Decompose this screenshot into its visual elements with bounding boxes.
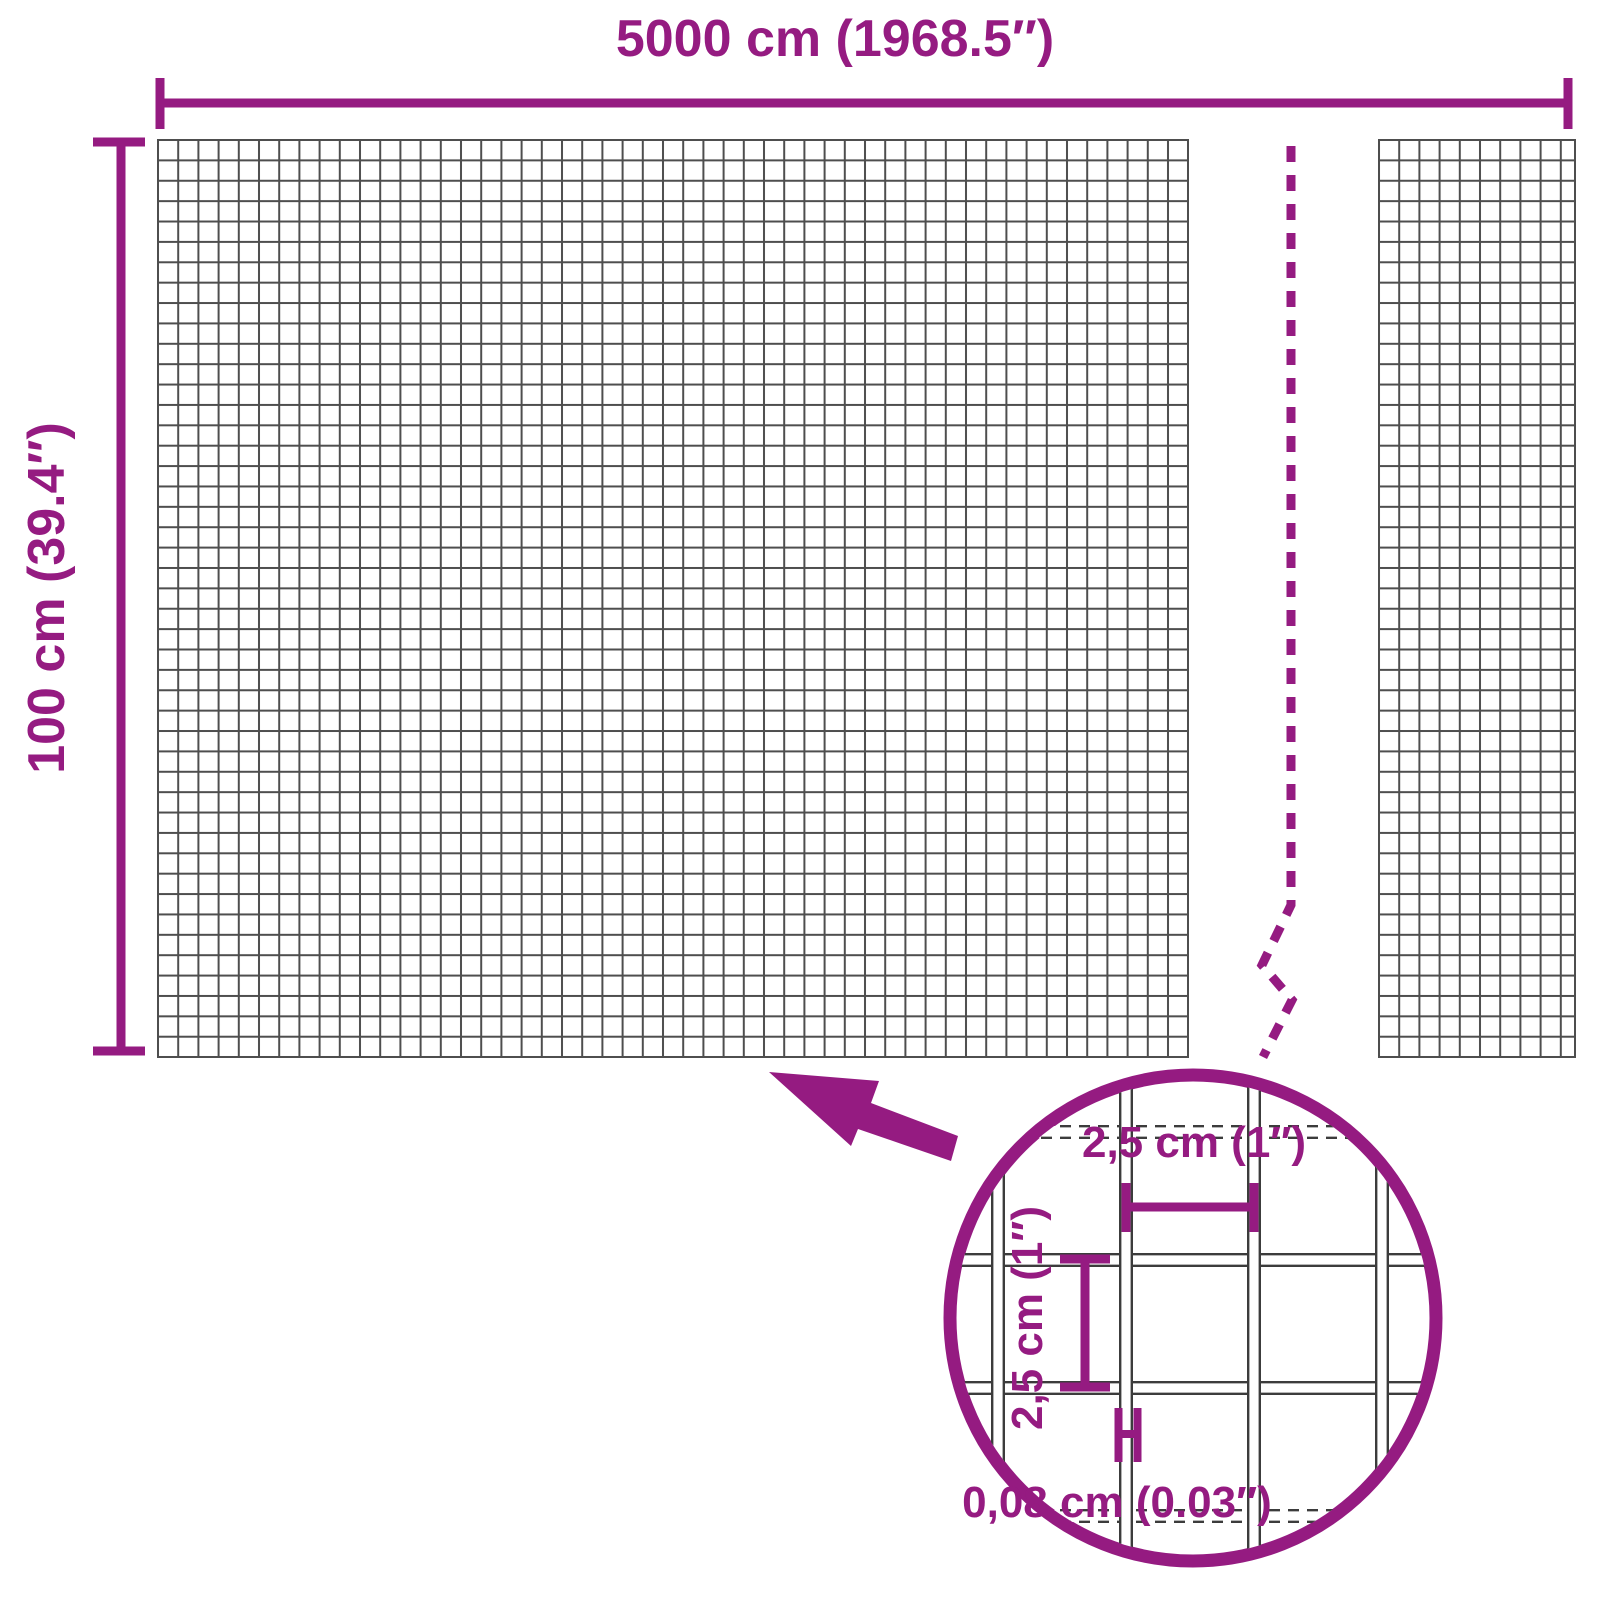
- main-mesh-panel: [158, 140, 1188, 1057]
- detail-width-label: 2,5 cm (1″): [1082, 1118, 1306, 1167]
- height-dimension: 100 cm (39.4″): [18, 142, 145, 1051]
- wire-mesh-dimension-diagram: 5000 cm (1968.5″) 100 cm (39.4″): [0, 0, 1600, 1600]
- detail-zoom-circle: 2,5 cm (1″) 2,5 cm (1″) 0,08 cm (0.03″): [946, 1072, 1440, 1564]
- panel-break-dashed-line: [1262, 146, 1292, 1057]
- magnifier-arrow-icon: [769, 1072, 958, 1161]
- right-mesh-panel: [1379, 140, 1575, 1057]
- width-dimension: 5000 cm (1968.5″): [160, 10, 1568, 129]
- detail-height-label: 2,5 cm (1″): [1003, 1206, 1052, 1430]
- main-mesh-grid: [158, 140, 1188, 1057]
- width-dimension-label: 5000 cm (1968.5″): [616, 10, 1054, 68]
- diagram-canvas: 5000 cm (1968.5″) 100 cm (39.4″): [0, 0, 1600, 1600]
- height-dimension-label: 100 cm (39.4″): [18, 422, 76, 774]
- detail-wire-thickness-label: 0,08 cm (0.03″): [962, 1478, 1272, 1527]
- right-mesh-grid: [1379, 140, 1575, 1057]
